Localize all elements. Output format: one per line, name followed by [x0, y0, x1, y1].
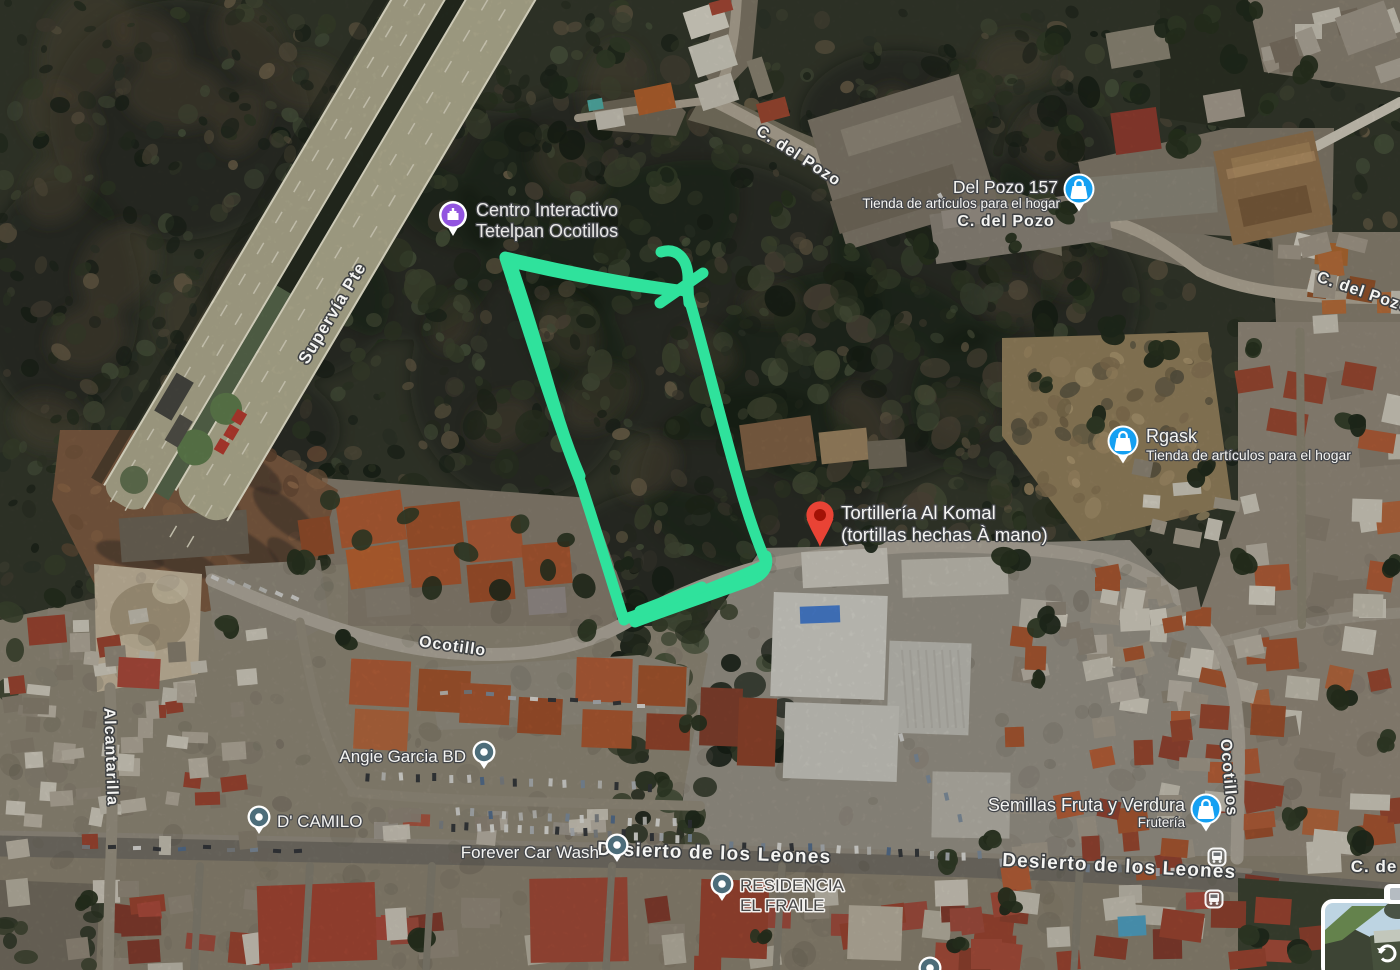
svg-text:C. de: C. de	[1351, 857, 1398, 876]
svg-text:C. del Pozo: C. del Pozo	[957, 213, 1054, 230]
svg-text:Semillas Fruta y Verdura: Semillas Fruta y Verdura	[988, 795, 1186, 815]
svg-text:Alcantarilla: Alcantarilla	[100, 707, 120, 806]
svg-text:RESIDENCIA: RESIDENCIA	[740, 876, 845, 895]
svg-text:(tortillas hechas À mano): (tortillas hechas À mano)	[841, 524, 1048, 545]
svg-text:Tortillería Al Komal: Tortillería Al Komal	[841, 502, 996, 523]
svg-text:Centro Interactivo: Centro Interactivo	[476, 200, 618, 220]
svg-text:Rgask: Rgask	[1146, 426, 1198, 446]
svg-text:Tetelpan Ocotillos: Tetelpan Ocotillos	[476, 221, 618, 241]
svg-text:D' CAMILO: D' CAMILO	[277, 812, 362, 831]
svg-text:Tienda de artículos para el ho: Tienda de artículos para el hogar	[862, 196, 1060, 211]
svg-text:EL FRAILE: EL FRAILE	[740, 896, 824, 915]
svg-text:Tienda de artículos para el ho: Tienda de artículos para el hogar	[1146, 447, 1351, 463]
svg-text:Del Pozo 157: Del Pozo 157	[953, 177, 1058, 197]
svg-text:Angie Garcia BD: Angie Garcia BD	[339, 747, 466, 766]
svg-text:Frutería: Frutería	[1138, 815, 1186, 830]
svg-text:Forever Car Wash: Forever Car Wash	[461, 843, 599, 862]
